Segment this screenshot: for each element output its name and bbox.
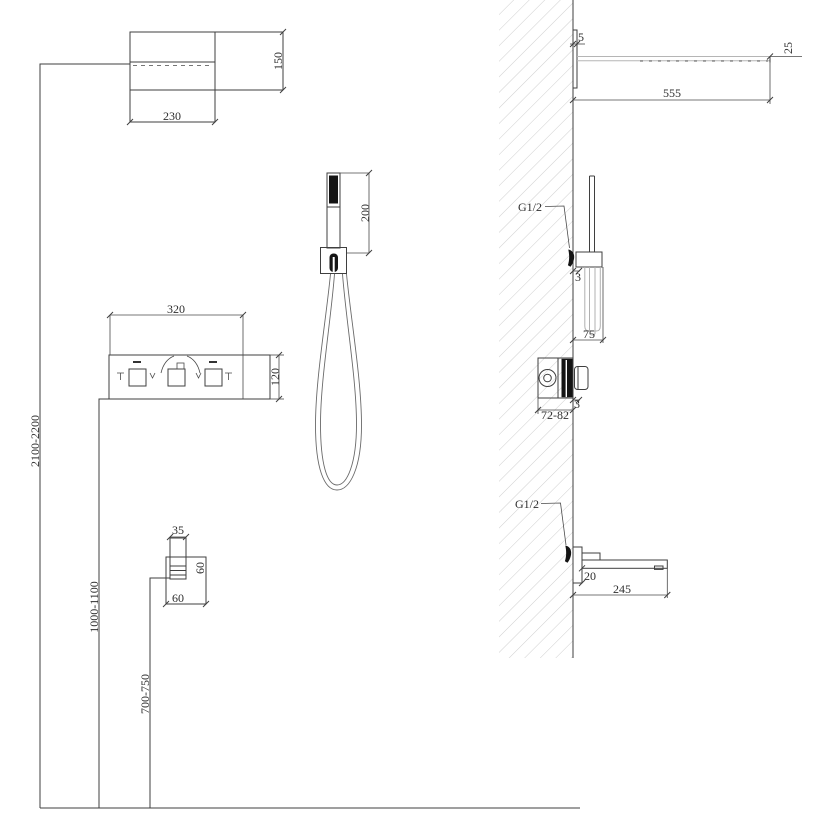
- holder-wall-gap-dimension: 3: [575, 270, 581, 284]
- installation-drawing: 230 150 200 3: [0, 0, 813, 816]
- valve-knob: [575, 367, 589, 390]
- head-mounting-height: 2100-2200: [28, 415, 42, 467]
- outlet-spout: [170, 538, 186, 579]
- outlet-height-dimension: 60: [193, 562, 207, 574]
- flow-marker-right-icon: [196, 373, 201, 378]
- panel-mounting-height: 1000-1100: [87, 581, 101, 633]
- wall-section: [499, 0, 573, 658]
- panel-knob-left: [129, 369, 146, 386]
- flow-marker-left-icon: [150, 373, 155, 378]
- wall-hatch: [499, 0, 573, 658]
- panel-height-dimension: 120: [268, 368, 282, 386]
- hand-shower-length-dimension: 200: [358, 204, 372, 222]
- panel-width-dimension: 320: [167, 302, 185, 316]
- spout-aerator: [655, 566, 664, 569]
- head-top-view: 230 150: [127, 29, 286, 125]
- valve-depth-dimension: 72-82: [541, 408, 569, 422]
- panel-knob-right: [205, 369, 222, 386]
- temperature-marker-right-icon: [225, 373, 232, 380]
- holder-bracket: [576, 252, 602, 267]
- spout-drop-dimension: 20: [584, 569, 596, 583]
- mounting-height-lines: 2100-2200 1000-1100 700-750: [28, 64, 580, 808]
- spout-base-step: [582, 553, 600, 560]
- spout-connection-label: G1/2: [515, 497, 539, 511]
- outlet-width-dimension: 60: [172, 591, 184, 605]
- spout-width-dimension: 35: [172, 523, 184, 537]
- holder-connection-label: G1/2: [518, 200, 542, 214]
- temperature-marker-left-icon: [117, 373, 124, 380]
- head-end-thickness-dimension: 25: [781, 42, 795, 54]
- holder-wand-ghost: [585, 267, 601, 331]
- spout-wall-plate: [573, 547, 582, 583]
- head-depth-dimension: 150: [271, 52, 285, 70]
- spout-front-view: 35 60 60: [163, 523, 209, 607]
- outlet-mounting-height: 700-750: [138, 674, 152, 714]
- hand-shower-face: [329, 176, 338, 204]
- holder-depth-dimension: 75: [583, 327, 595, 341]
- head-wall-gap-dimension: 5: [578, 30, 584, 44]
- panel-knob-middle: [168, 369, 185, 386]
- hand-shower-front-view: 200: [316, 170, 373, 490]
- head-height-line: [40, 64, 130, 808]
- holder-rod: [590, 176, 595, 252]
- valve-trim-gap-dimension: 3: [574, 397, 580, 411]
- spout-length-dimension: 245: [613, 582, 631, 596]
- head-side-view: 5 25 555: [570, 30, 802, 104]
- head-width-dimension: 230: [163, 109, 181, 123]
- mixer-panel-front-view: 320 120: [107, 302, 284, 402]
- drawing-canvas: 230 150 200 3: [0, 0, 813, 816]
- head-length-dimension: 555: [663, 86, 681, 100]
- head-wall-plate: [573, 30, 577, 88]
- outlet-height-line: [150, 578, 170, 808]
- middle-knob-tab: [177, 363, 184, 369]
